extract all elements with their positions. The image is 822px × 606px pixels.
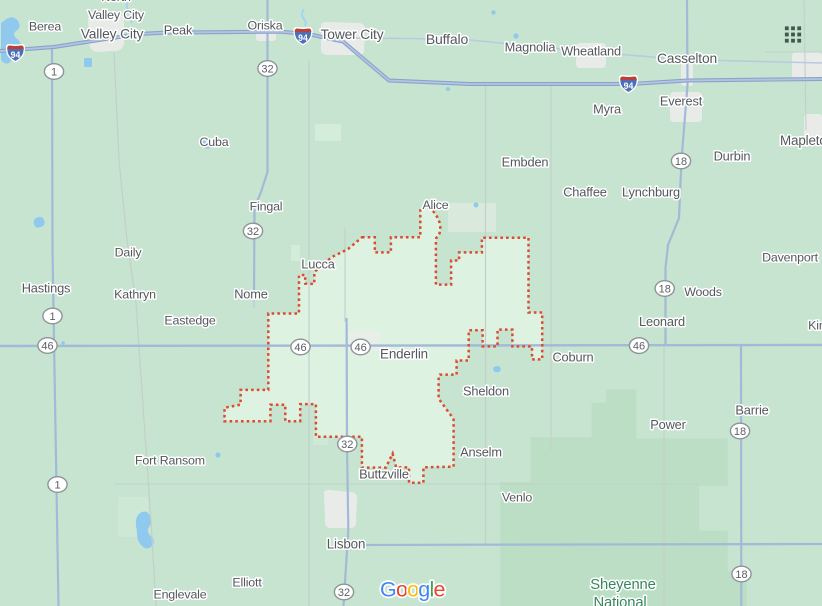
svg-text:Magnolia: Magnolia	[505, 39, 557, 54]
svg-text:18: 18	[659, 283, 671, 295]
svg-text:Alice: Alice	[422, 198, 448, 212]
svg-text:1: 1	[49, 311, 55, 323]
svg-text:18: 18	[735, 569, 747, 581]
svg-text:46: 46	[633, 341, 645, 353]
svg-text:18: 18	[675, 156, 687, 168]
svg-text:Lisbon: Lisbon	[327, 537, 366, 552]
svg-text:Peak: Peak	[164, 22, 193, 37]
svg-text:Nome: Nome	[234, 286, 268, 301]
svg-text:Lynchburg: Lynchburg	[622, 184, 680, 199]
svg-text:Eastedge: Eastedge	[164, 313, 215, 327]
svg-text:Valley City: Valley City	[81, 26, 144, 41]
svg-text:Mapleton: Mapleton	[780, 133, 822, 148]
svg-text:Embden: Embden	[502, 154, 549, 169]
svg-text:Wheatland: Wheatland	[561, 43, 621, 58]
svg-text:Everest: Everest	[660, 93, 703, 108]
svg-text:Davenport: Davenport	[762, 250, 819, 264]
svg-text:Myra: Myra	[593, 101, 622, 116]
svg-text:18: 18	[734, 426, 746, 438]
svg-text:Lucca: Lucca	[301, 256, 335, 271]
svg-text:Chaffee: Chaffee	[563, 184, 607, 199]
svg-text:Leonard: Leonard	[639, 314, 685, 329]
svg-text:Durbin: Durbin	[714, 148, 751, 163]
svg-text:32: 32	[247, 226, 259, 238]
svg-text:32: 32	[338, 587, 350, 599]
svg-text:Sheldon: Sheldon	[463, 383, 509, 398]
svg-text:32: 32	[261, 63, 273, 75]
svg-text:Barrie: Barrie	[735, 402, 768, 417]
svg-text:Buttzville: Buttzville	[359, 466, 409, 481]
svg-text:Venlo: Venlo	[502, 490, 533, 504]
svg-text:Woods: Woods	[684, 285, 722, 299]
svg-text:Daily: Daily	[115, 245, 143, 259]
svg-text:Hastings: Hastings	[22, 280, 71, 295]
svg-text:North: North	[101, 0, 131, 4]
svg-text:National: National	[593, 595, 646, 606]
svg-text:Kathryn: Kathryn	[114, 287, 156, 301]
svg-text:Casselton: Casselton	[657, 51, 717, 66]
svg-text:Power: Power	[650, 417, 686, 432]
svg-text:32: 32	[341, 439, 353, 451]
svg-text:Google: Google	[380, 578, 445, 602]
svg-text:Berea: Berea	[29, 19, 62, 33]
svg-text:Fingal: Fingal	[250, 199, 283, 213]
svg-text:1: 1	[51, 66, 57, 78]
svg-text:Elliott: Elliott	[232, 575, 262, 589]
svg-text:Coburn: Coburn	[552, 349, 593, 364]
svg-text:Sheyenne: Sheyenne	[590, 577, 655, 593]
svg-text:46: 46	[41, 340, 53, 352]
svg-text:Tower City: Tower City	[321, 27, 384, 42]
svg-text:46: 46	[294, 342, 306, 354]
svg-text:Fort Ransom: Fort Ransom	[135, 453, 205, 467]
svg-text:46: 46	[354, 342, 366, 354]
svg-text:1: 1	[54, 479, 60, 491]
svg-text:Oriska: Oriska	[248, 18, 283, 32]
svg-text:Cuba: Cuba	[199, 135, 228, 149]
svg-text:Enderlin: Enderlin	[380, 347, 428, 362]
svg-text:Kindred: Kindred	[808, 318, 822, 332]
svg-text:Valley City: Valley City	[88, 8, 145, 22]
svg-text:Englevale: Englevale	[153, 587, 206, 601]
svg-text:Buffalo: Buffalo	[426, 31, 469, 47]
svg-text:Anselm: Anselm	[460, 444, 502, 459]
